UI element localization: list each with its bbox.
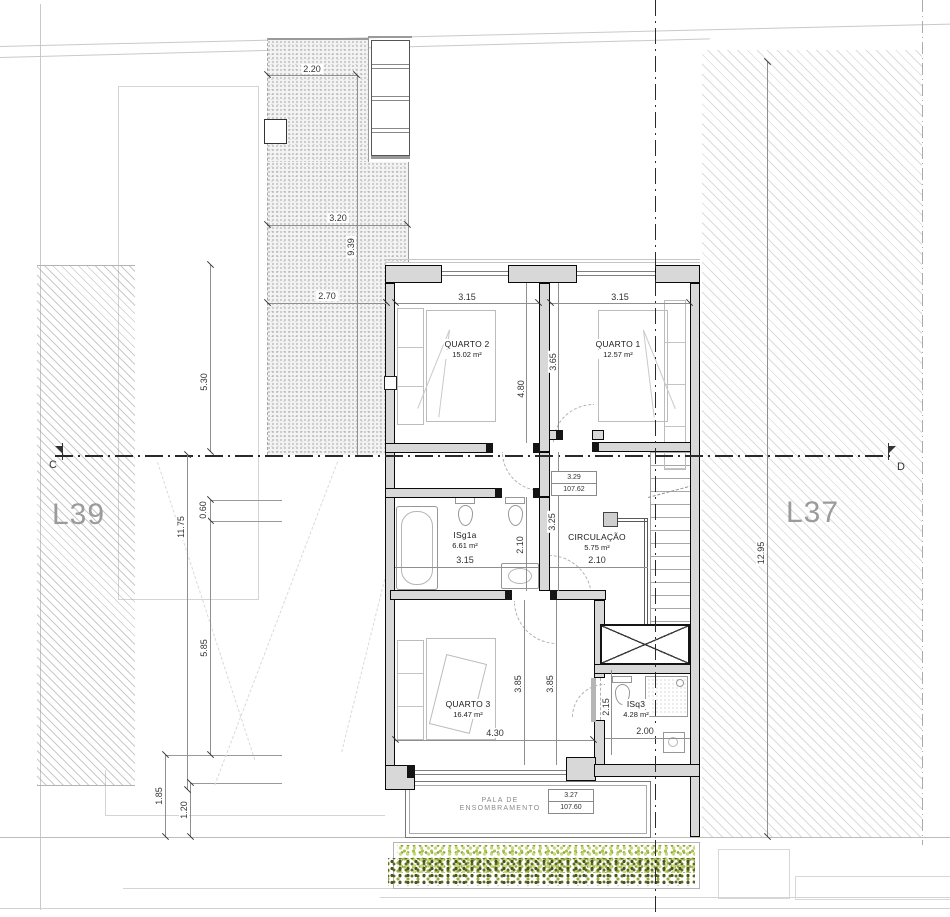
door-jamb	[550, 590, 557, 600]
section-marker-d	[888, 443, 889, 460]
window-glazing	[442, 275, 508, 276]
section-label-d: D	[897, 461, 905, 473]
neighbour-building-outline	[118, 86, 259, 600]
dim-label: 2.10	[515, 534, 525, 556]
room-name: QUARTO 2	[444, 339, 491, 349]
room-label-circulacao: CIRCULAÇÃO 5.75 m²	[567, 532, 627, 552]
dim-label: 2.15	[601, 696, 611, 718]
door-jamb	[533, 443, 540, 453]
dim-label: 3.85	[513, 673, 523, 695]
bidet-tank	[505, 497, 525, 504]
wall-segment	[390, 590, 512, 600]
door-leaf	[591, 678, 596, 722]
context-line	[0, 908, 950, 909]
dim-label: 1.20	[179, 799, 189, 821]
door-jamb	[533, 488, 540, 498]
room-name: QUARTO 3	[445, 699, 492, 709]
wall-segment	[690, 283, 700, 837]
stair-void-marker	[600, 624, 690, 665]
dim-label: 0.60	[198, 499, 208, 521]
room-area: 12.57 m²	[595, 350, 642, 359]
dim-label: 4.80	[516, 378, 526, 400]
room-label-quarto2: QUARTO 2 15.02 m²	[444, 339, 491, 359]
room-label-isg1a: ISg1a 6.61 m²	[451, 530, 478, 550]
section-line-cd	[55, 455, 895, 457]
wall-segment	[385, 488, 502, 498]
dim-line	[210, 521, 211, 755]
level-marker: 3.29 107.62	[551, 471, 597, 496]
room-area: 16.47 m²	[445, 710, 492, 719]
door-jamb	[486, 443, 493, 453]
stair-railing	[644, 518, 645, 624]
wardrobe	[397, 308, 424, 425]
section-marker-c	[62, 443, 63, 460]
yard-gravel-area	[267, 162, 408, 262]
dim-line	[210, 500, 211, 521]
wall-segment	[385, 283, 395, 780]
plot-boundary-line	[922, 0, 923, 845]
context-line	[105, 815, 385, 816]
room-label-isq3: ISq3 4.28 m²	[622, 699, 649, 719]
context-outline	[718, 849, 790, 899]
floor-plan-sheet: L39 L37 2.20 3.20 2.70 9.39 C D 5.30 11.…	[0, 0, 950, 917]
dim-line	[395, 303, 539, 304]
dim-line	[267, 75, 357, 76]
room-name: ISq3	[622, 699, 649, 709]
dim-extension	[165, 755, 282, 756]
exterior-stair-edge	[371, 156, 410, 159]
window-glazing	[577, 271, 655, 272]
dim-label: 2.20	[301, 64, 323, 74]
room-name: ISg1a	[451, 530, 478, 540]
dim-label: 3.25	[547, 511, 557, 533]
dim-line	[267, 303, 387, 304]
window-glazing	[415, 774, 566, 775]
level-height: 3.27	[549, 790, 593, 802]
yard-box-marker	[264, 119, 287, 144]
dim-line	[611, 670, 612, 755]
wall-segment	[385, 265, 442, 283]
door-jamb	[556, 430, 563, 440]
dim-label: 2.10	[586, 555, 608, 565]
room-area: 15.02 m²	[444, 350, 491, 359]
dim-label: 4.30	[484, 728, 506, 738]
stair-newel-post	[603, 512, 618, 527]
dim-line	[395, 567, 539, 568]
dim-line	[395, 740, 594, 741]
shower-head	[676, 679, 684, 687]
wall-segment	[566, 757, 596, 781]
dim-extension	[210, 521, 282, 522]
wall-segment	[385, 443, 492, 453]
dim-label: 3.85	[545, 673, 555, 695]
canopy-label: PALA DE ENSOMBRAMENTO	[460, 797, 541, 812]
dim-line	[267, 225, 408, 226]
wall-segment	[550, 590, 606, 600]
canopy-label-line2: ENSOMBRAMENTO	[460, 805, 541, 812]
yard-edge	[408, 162, 409, 262]
wall-segment	[508, 265, 577, 283]
axis-line	[655, 0, 656, 917]
exterior-stair	[371, 40, 410, 156]
dim-line	[357, 75, 358, 455]
lot-label-l37: L37	[786, 496, 839, 530]
door-jamb	[495, 488, 502, 498]
dim-label: 3.15	[456, 292, 478, 302]
room-label-quarto1: QUARTO 1 12.57 m²	[595, 339, 642, 359]
wall-segment	[655, 265, 700, 283]
staircase-treads	[650, 452, 691, 624]
stair-railing	[617, 521, 647, 522]
room-area: 5.75 m²	[567, 543, 627, 552]
exterior-stair-tread	[372, 128, 409, 129]
dim-label: 3.15	[609, 292, 631, 302]
dim-label: 1.85	[154, 785, 164, 807]
toilet-tank	[612, 676, 632, 683]
dim-line	[605, 738, 690, 739]
dim-label: 12.95	[756, 540, 766, 567]
stair-railing	[647, 518, 648, 624]
level-marker: 3.27 107.60	[548, 789, 594, 814]
dim-label: 11.75	[176, 514, 186, 540]
yard-edge	[267, 38, 268, 455]
dim-label: 9.39	[346, 236, 356, 258]
section-marker-c	[55, 446, 62, 453]
dim-extension	[190, 783, 282, 784]
level-elevation: 107.60	[549, 802, 593, 813]
level-elevation: 107.62	[552, 484, 596, 495]
exterior-stair-tread	[372, 100, 409, 101]
roof-edge-line	[385, 259, 700, 260]
lot-l39-edge	[37, 785, 135, 786]
window-glazing	[577, 275, 655, 276]
room-area: 6.61 m²	[451, 541, 478, 550]
hedge-vegetation	[388, 858, 695, 886]
exterior-stair-tread	[372, 68, 409, 69]
wall-segment	[594, 664, 691, 674]
door-jamb	[592, 442, 599, 452]
wall-segment	[592, 430, 604, 440]
window-glazing	[415, 770, 566, 771]
sink-basin	[508, 568, 532, 584]
plot-boundary-line	[0, 23, 950, 47]
toilet-tank	[455, 497, 475, 504]
section-marker-d	[889, 446, 896, 453]
dim-label: 2.00	[634, 726, 656, 736]
exterior-stair-tread	[372, 132, 409, 133]
yard-edge	[368, 38, 369, 162]
dim-line	[550, 567, 648, 568]
dim-extension	[210, 500, 282, 501]
exterior-stair-tread	[372, 96, 409, 97]
yard-gravel-area	[267, 38, 368, 164]
wall-vent-marker	[384, 376, 397, 390]
dim-label: 3.20	[327, 213, 349, 223]
dim-line	[210, 265, 211, 452]
window-jamb	[407, 765, 415, 778]
bathtub-inner	[401, 511, 433, 585]
construction-line	[341, 560, 390, 752]
level-height: 3.29	[552, 472, 596, 484]
lot-label-l39: L39	[52, 498, 105, 532]
wardrobe	[397, 640, 424, 740]
wall-segment	[594, 442, 691, 452]
room-name: CIRCULAÇÃO	[567, 532, 627, 542]
room-label-quarto3: QUARTO 3 16.47 m²	[445, 699, 492, 719]
dim-line	[526, 497, 527, 591]
room-area: 4.28 m²	[622, 710, 649, 719]
dim-line	[767, 62, 768, 837]
roof-edge-line	[385, 262, 700, 263]
canopy-label-line1: PALA DE	[460, 797, 541, 804]
dim-line	[526, 283, 527, 443]
room-name: QUARTO 1	[595, 339, 642, 349]
dim-label: 5.85	[199, 637, 209, 659]
section-label-c: C	[49, 459, 57, 471]
lot-l39-edge	[37, 265, 135, 266]
window-glazing	[442, 271, 508, 272]
context-outline	[795, 876, 950, 900]
yard-edge	[368, 36, 412, 38]
wall-segment	[539, 452, 550, 497]
exterior-stair-tread	[372, 64, 409, 65]
dim-label: 5.30	[199, 371, 209, 393]
stair-railing	[617, 518, 647, 519]
dim-label: 3.15	[454, 555, 476, 565]
dim-line	[165, 755, 166, 837]
wall-segment	[594, 764, 700, 777]
dim-label: 2.70	[316, 291, 338, 301]
dim-label: 3.65	[548, 351, 558, 373]
dim-line	[550, 303, 690, 304]
lot-l37-hatch	[702, 50, 922, 837]
door-jamb	[505, 590, 512, 600]
dim-line	[187, 455, 188, 790]
bed	[426, 310, 496, 422]
dim-line	[558, 283, 559, 430]
